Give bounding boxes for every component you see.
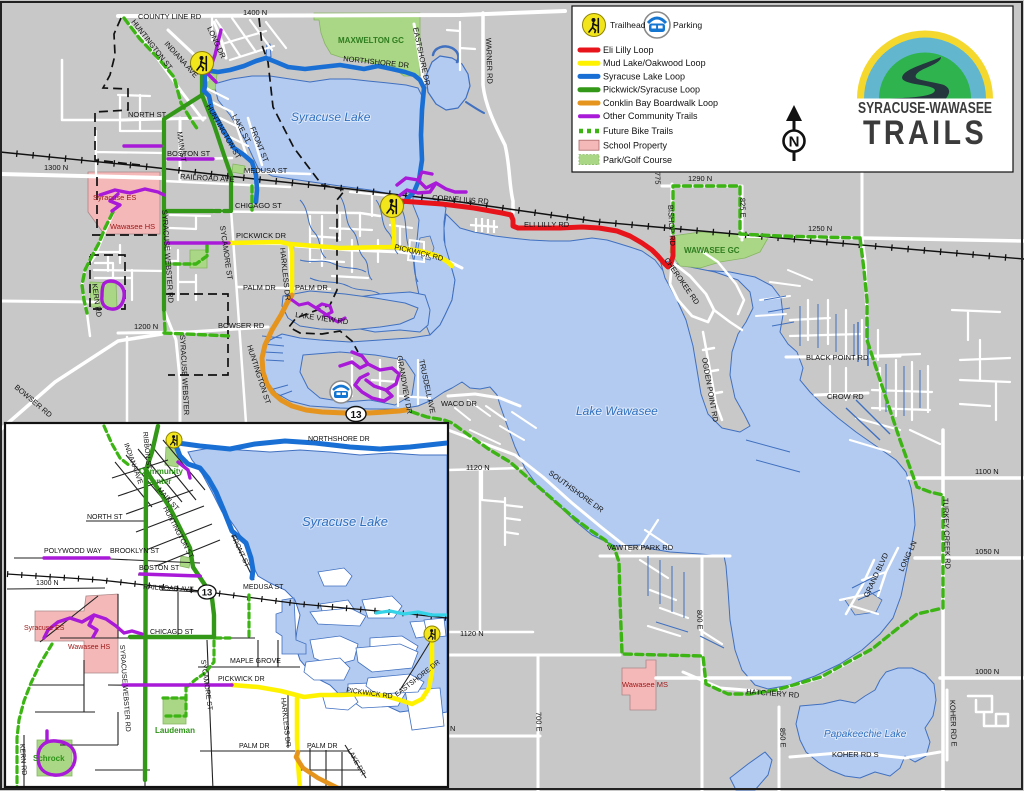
svg-text:NORTHSHORE DR: NORTHSHORE DR xyxy=(308,436,370,443)
svg-text:Center: Center xyxy=(146,477,171,486)
svg-text:NORTH ST: NORTH ST xyxy=(128,110,167,119)
svg-text:PALM DR: PALM DR xyxy=(243,283,276,292)
svg-text:1120 N: 1120 N xyxy=(460,629,484,638)
svg-text:Schrock: Schrock xyxy=(33,754,65,763)
svg-text:Wawasee HS: Wawasee HS xyxy=(110,222,155,231)
svg-text:MAXWELTON GC: MAXWELTON GC xyxy=(338,36,404,45)
svg-text:Papakeechie Lake: Papakeechie Lake xyxy=(824,729,907,740)
svg-text:BOWSER RD: BOWSER RD xyxy=(218,321,265,330)
svg-text:PALM DR: PALM DR xyxy=(307,743,338,750)
svg-text:13: 13 xyxy=(202,588,213,599)
svg-text:700 E: 700 E xyxy=(534,712,544,732)
svg-text:NORTH ST: NORTH ST xyxy=(87,514,123,521)
svg-text:Wawasee HS: Wawasee HS xyxy=(68,644,110,651)
svg-text:N: N xyxy=(450,724,455,733)
svg-text:Syracuse ES: Syracuse ES xyxy=(24,625,65,632)
svg-text:Park/Golf Course: Park/Golf Course xyxy=(603,155,672,165)
svg-text:BROOKLYN ST: BROOKLYN ST xyxy=(110,548,160,555)
svg-text:1000 N: 1000 N xyxy=(975,667,999,676)
svg-text:N: N xyxy=(789,134,800,151)
svg-text:Other Community Trails: Other Community Trails xyxy=(603,111,698,121)
svg-text:Pickwick/Syracuse Loop: Pickwick/Syracuse Loop xyxy=(603,85,700,95)
svg-text:1050 N: 1050 N xyxy=(975,547,999,556)
svg-text:825 E: 825 E xyxy=(738,198,748,218)
svg-text:WAWASEE GC: WAWASEE GC xyxy=(684,246,740,255)
svg-text:Mud Lake/Oakwood Loop: Mud Lake/Oakwood Loop xyxy=(603,58,706,68)
svg-text:1100 N: 1100 N xyxy=(975,467,999,476)
svg-text:1200 N: 1200 N xyxy=(134,322,158,331)
svg-text:Trailhead: Trailhead xyxy=(610,20,646,30)
svg-text:1290 N: 1290 N xyxy=(688,174,712,183)
svg-text:MEDUSA ST: MEDUSA ST xyxy=(243,584,284,591)
svg-text:Future Bike Trails: Future Bike Trails xyxy=(603,126,674,136)
svg-text:1400 N: 1400 N xyxy=(243,8,267,17)
svg-text:Wawasee MS: Wawasee MS xyxy=(622,680,668,689)
svg-text:850 E: 850 E xyxy=(778,728,788,748)
svg-text:COUNTY LINE RD: COUNTY LINE RD xyxy=(138,12,202,21)
svg-text:BOSTON ST: BOSTON ST xyxy=(139,565,180,572)
svg-text:1250 N: 1250 N xyxy=(808,224,832,233)
svg-text:MAPLE GROVE: MAPLE GROVE xyxy=(230,658,281,665)
svg-text:775: 775 xyxy=(653,172,662,185)
svg-text:CHICAGO ST: CHICAGO ST xyxy=(150,629,194,636)
svg-text:Lake Wawasee: Lake Wawasee xyxy=(576,404,658,418)
svg-text:VAWTER PARK RD: VAWTER PARK RD xyxy=(607,543,674,552)
svg-text:PICKWICK DR: PICKWICK DR xyxy=(218,676,265,683)
svg-text:PICKWICK DR: PICKWICK DR xyxy=(236,231,287,240)
svg-text:WACO DR: WACO DR xyxy=(441,399,478,408)
svg-text:Syracuse Lake: Syracuse Lake xyxy=(302,514,388,529)
svg-text:Syracuse Lake Loop: Syracuse Lake Loop xyxy=(603,71,685,81)
svg-text:KOHER RD E: KOHER RD E xyxy=(948,700,959,747)
svg-text:1120 N: 1120 N xyxy=(466,463,490,472)
svg-text:School Property: School Property xyxy=(603,141,668,151)
svg-text:Eli Lilly Loop: Eli Lilly Loop xyxy=(603,45,654,55)
svg-text:KOHER RD S: KOHER RD S xyxy=(832,750,879,759)
svg-text:TRAILS: TRAILS xyxy=(863,114,987,152)
svg-text:13: 13 xyxy=(350,410,362,421)
svg-text:Community: Community xyxy=(139,467,184,476)
svg-text:PALM DR: PALM DR xyxy=(239,743,270,750)
svg-text:POLYWOOD WAY: POLYWOOD WAY xyxy=(44,548,102,555)
svg-text:CROW RD: CROW RD xyxy=(827,392,864,401)
svg-text:ELI LILLY RD: ELI LILLY RD xyxy=(524,220,570,229)
svg-text:BOSTON ST: BOSTON ST xyxy=(167,149,211,158)
svg-text:Laudeman: Laudeman xyxy=(155,726,195,735)
svg-text:Syracuse ES: Syracuse ES xyxy=(93,193,136,202)
svg-text:WARNER RD: WARNER RD xyxy=(484,38,495,85)
svg-text:MEDUSA ST: MEDUSA ST xyxy=(244,166,288,175)
svg-text:1300 N: 1300 N xyxy=(44,163,68,172)
svg-text:800 E: 800 E xyxy=(695,610,705,630)
svg-text:1300 N: 1300 N xyxy=(36,580,59,587)
svg-text:Parking: Parking xyxy=(673,20,702,30)
svg-text:PALM DR: PALM DR xyxy=(295,283,328,292)
svg-text:CHICAGO ST: CHICAGO ST xyxy=(235,201,282,210)
svg-text:BLACK POINT RD: BLACK POINT RD xyxy=(806,353,869,362)
svg-text:Conklin Bay Boardwalk Loop: Conklin Bay Boardwalk Loop xyxy=(603,98,718,108)
svg-text:Syracuse Lake: Syracuse Lake xyxy=(291,110,371,124)
